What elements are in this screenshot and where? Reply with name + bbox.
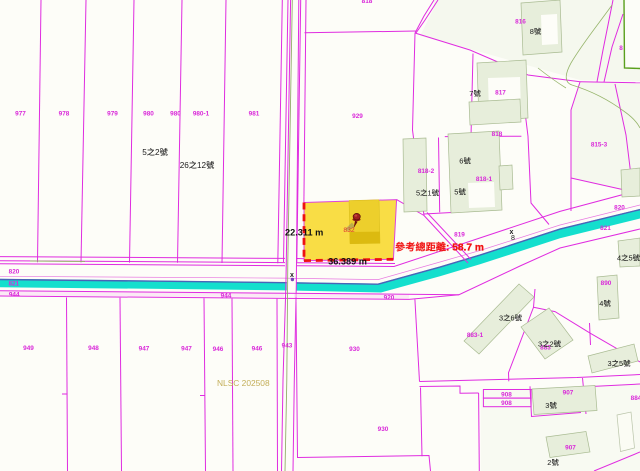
svg-text:815-3: 815-3	[591, 142, 608, 149]
svg-text:4: 4	[599, 299, 603, 308]
svg-text:930: 930	[378, 426, 389, 433]
svg-text:977: 977	[15, 110, 26, 117]
svg-text:890: 890	[601, 280, 612, 287]
svg-text:8: 8	[511, 235, 515, 242]
svg-text:820: 820	[614, 205, 625, 212]
svg-text:948: 948	[88, 345, 99, 352]
svg-text:5: 5	[142, 148, 147, 157]
svg-text:908: 908	[501, 400, 512, 407]
svg-text:943: 943	[282, 343, 293, 350]
svg-text:NLSC 202508: NLSC 202508	[217, 378, 270, 388]
svg-text:12: 12	[197, 161, 207, 170]
svg-text:907: 907	[565, 445, 576, 452]
svg-text:949: 949	[23, 345, 34, 352]
svg-text:978: 978	[59, 110, 70, 117]
svg-text:817: 817	[495, 90, 506, 97]
svg-text:946: 946	[252, 346, 263, 353]
svg-text:944: 944	[9, 291, 20, 298]
svg-text:3: 3	[545, 401, 549, 410]
svg-text:980: 980	[170, 110, 181, 117]
svg-text:5: 5	[629, 254, 633, 263]
svg-text:980-1: 980-1	[193, 110, 210, 117]
svg-text:x: x	[290, 272, 294, 279]
svg-text:26: 26	[180, 161, 190, 170]
svg-text:2: 2	[550, 340, 554, 349]
svg-text:3: 3	[608, 359, 612, 368]
svg-text:821: 821	[600, 225, 611, 232]
svg-text:981: 981	[249, 110, 260, 117]
svg-text:3: 3	[538, 340, 542, 349]
svg-text:6: 6	[511, 314, 515, 323]
svg-text:8: 8	[530, 27, 534, 36]
svg-text:947: 947	[139, 346, 150, 353]
svg-text:: 58.7 m: : 58.7 m	[446, 243, 484, 254]
svg-text:947: 947	[181, 346, 192, 353]
svg-text:2: 2	[547, 458, 551, 467]
svg-text:884: 884	[631, 395, 640, 402]
svg-text:820: 820	[9, 269, 20, 276]
svg-text:930: 930	[349, 346, 360, 353]
svg-text:5: 5	[454, 188, 458, 197]
svg-text:908: 908	[501, 392, 512, 399]
svg-text:2: 2	[155, 148, 160, 157]
svg-text:1: 1	[428, 189, 432, 198]
svg-text:816: 816	[515, 19, 526, 26]
svg-text:907: 907	[563, 390, 574, 397]
svg-text:6: 6	[459, 157, 463, 166]
svg-text:819: 819	[454, 232, 465, 239]
svg-text:4: 4	[617, 254, 621, 263]
svg-text:818-1: 818-1	[476, 176, 493, 183]
svg-text:946: 946	[213, 346, 224, 353]
svg-text:818: 818	[492, 131, 503, 138]
svg-text:8: 8	[619, 45, 623, 52]
svg-text:832: 832	[343, 227, 355, 234]
svg-text:944: 944	[221, 293, 232, 300]
svg-text:920: 920	[384, 295, 395, 302]
svg-text:818: 818	[362, 0, 373, 5]
svg-text:883-1: 883-1	[467, 332, 484, 339]
svg-text:979: 979	[107, 110, 118, 117]
svg-text:3: 3	[499, 314, 503, 323]
svg-text:5: 5	[619, 359, 623, 368]
svg-text:929: 929	[352, 113, 363, 120]
svg-text:980: 980	[143, 110, 154, 117]
svg-text:22.311 m: 22.311 m	[285, 228, 323, 238]
svg-text:821: 821	[8, 280, 19, 287]
svg-text:5: 5	[416, 189, 420, 198]
svg-text:7: 7	[469, 89, 473, 98]
svg-text:36.389 m: 36.389 m	[328, 257, 367, 267]
svg-text:818-2: 818-2	[418, 168, 435, 175]
